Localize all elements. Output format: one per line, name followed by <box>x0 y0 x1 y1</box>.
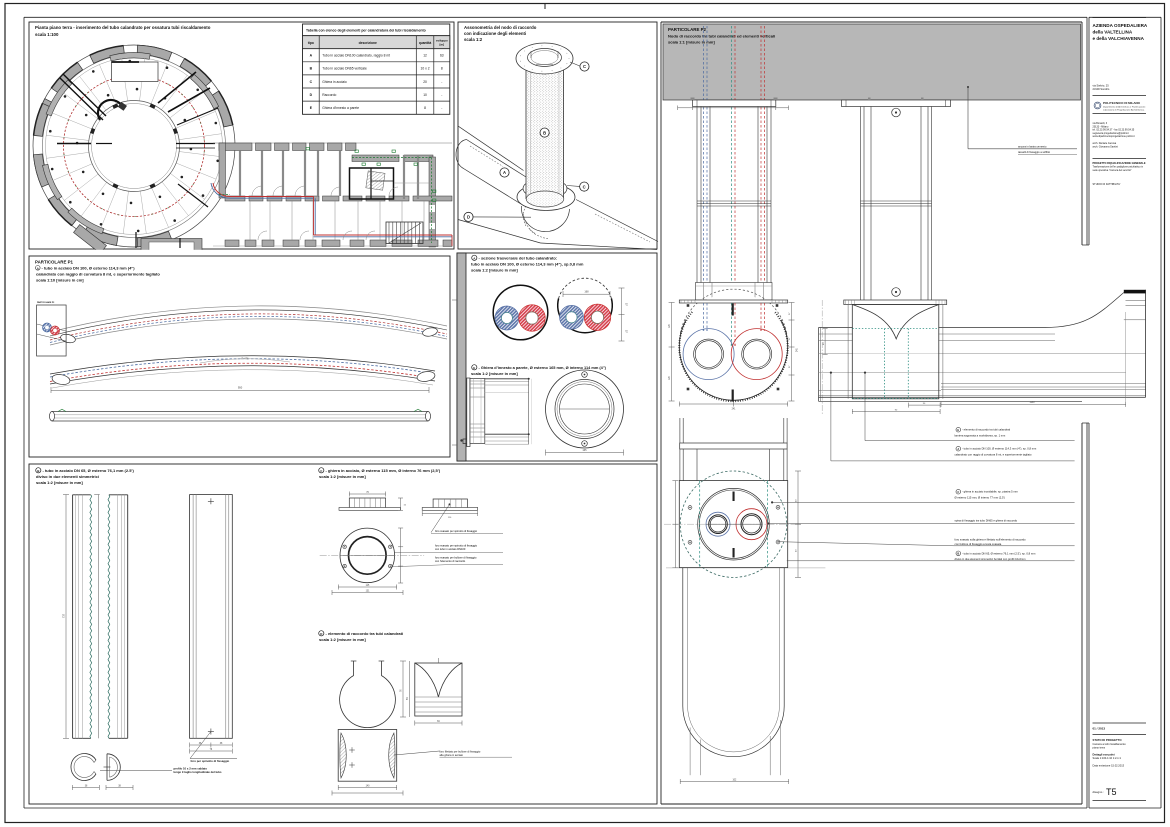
svg-text:scala 1:2 [misure in mm]: scala 1:2 [misure in mm] <box>471 268 518 273</box>
svg-text:alla ghiera in acciaio: alla ghiera in acciaio <box>440 753 464 757</box>
svg-text:Ghiera in acciaio: Ghiera in acciaio <box>322 80 347 84</box>
svg-text:foro svasato per bullone di fi: foro svasato per bullone di fissaggio <box>435 556 477 560</box>
svg-text:-: - <box>441 106 442 110</box>
svg-text:8: 8 <box>424 106 426 110</box>
svg-text:23100 Sondrio: 23100 Sondrio <box>1093 87 1110 91</box>
svg-text:Dettagli esecutivi: Dettagli esecutivi <box>1093 753 1115 757</box>
svg-text:A: A <box>310 54 313 58</box>
svg-text:40: 40 <box>796 499 798 502</box>
svg-text:con bullone di fissaggio a tes: con bullone di fissaggio a testa svasata <box>955 542 1002 546</box>
svg-text:scala 1:2 [misure in mm]: scala 1:2 [misure in mm] <box>36 480 83 485</box>
svg-text:- elemento di raccordo tra tub: - elemento di raccordo tra tubi calandra… <box>326 631 404 636</box>
svg-text:e della VALCHIAVENNA: e della VALCHIAVENNA <box>1093 36 1145 41</box>
svg-text:30: 30 <box>923 403 926 405</box>
svg-text:Pianta piano terra - inserimen: Pianta piano terra - inserimento del tub… <box>35 25 211 30</box>
svg-text:PARTICOLARE P3: PARTICOLARE P3 <box>37 301 55 304</box>
svg-text:C: C <box>583 64 586 69</box>
svg-text:tipo: tipo <box>308 41 314 45</box>
svg-text:Tubo in acciaio DN100 calandra: Tubo in acciaio DN100 calandrato, raggio… <box>322 54 390 58</box>
svg-text:diviso in due elementi simmetr: diviso in due elementi simmetrici <box>36 474 99 479</box>
svg-text:84: 84 <box>407 697 409 700</box>
svg-text:140: 140 <box>366 785 371 787</box>
svg-text:8: 8 <box>441 67 443 71</box>
svg-text:E: E <box>473 366 475 370</box>
svg-text:40: 40 <box>823 342 825 345</box>
svg-text:Data emissione 15.02.2013: Data emissione 15.02.2013 <box>1093 764 1125 768</box>
svg-text:Dipartimento di Architettura e: Dipartimento di Architettura e Pianifica… <box>1103 106 1146 109</box>
svg-text:con tubo in acciaio DN100: con tubo in acciaio DN100 <box>435 547 466 551</box>
svg-text:- Ghiera d’innesto a parete, Ø: - Ghiera d’innesto a parete, Ø esterno 1… <box>479 365 607 370</box>
svg-text:C: C <box>310 80 313 84</box>
svg-text:Ghiera d'innesto a parete: Ghiera d'innesto a parete <box>322 106 359 110</box>
svg-text:168: 168 <box>584 291 589 294</box>
svg-text:calandrato con raggio di curva: calandrato con raggio di curvatura 8 mt,… <box>955 453 1032 457</box>
svg-text:scala 1:2: scala 1:2 <box>464 37 483 42</box>
svg-text:76: 76 <box>401 689 403 692</box>
svg-text:10 x 2: 10 x 2 <box>421 67 430 71</box>
svg-text:- ghiera in acciaio inoxidabil: - ghiera in acciaio inoxidabile, sp. pia… <box>962 490 1019 494</box>
svg-text:15: 15 <box>404 505 407 507</box>
svg-text:scala 1:100: scala 1:100 <box>35 32 59 37</box>
svg-text:57: 57 <box>789 312 791 315</box>
svg-text:D: D <box>467 215 470 220</box>
svg-text:disegno :: disegno : <box>1093 790 1105 794</box>
svg-text:B: B <box>543 130 546 135</box>
svg-text:38: 38 <box>85 785 88 787</box>
svg-text:E: E <box>957 428 959 432</box>
svg-text:Ø esterno 115 mm, Ø interno 77: Ø esterno 115 mm, Ø interno 77 mm (2,5’) <box>955 496 1006 500</box>
svg-text:arch. Giovanna Santini: arch. Giovanna Santini <box>1093 146 1119 149</box>
svg-text:T5: T5 <box>1106 787 1117 797</box>
svg-text:57: 57 <box>789 365 791 368</box>
svg-text:PARTICOLARE P2: PARTICOLARE P2 <box>668 27 707 32</box>
svg-text:scala 1:2 [misure in mm]: scala 1:2 [misure in mm] <box>319 637 366 642</box>
svg-text:A: A <box>957 447 959 451</box>
svg-text:241: 241 <box>732 409 737 411</box>
svg-text:STUDIO DI FATTIBILITA': STUDIO DI FATTIBILITA' <box>1093 183 1121 186</box>
svg-text:1240: 1240 <box>1029 402 1035 404</box>
svg-text:B: B <box>310 67 313 71</box>
svg-text:scala 1:1 [misure in mm]: scala 1:1 [misure in mm] <box>668 40 715 45</box>
svg-text:diviso in due elementi simmetr: diviso in due elementi simmetrici bordat… <box>955 557 1027 561</box>
svg-text:C: C <box>957 490 959 494</box>
svg-text:57: 57 <box>625 330 628 333</box>
svg-text:102: 102 <box>732 779 737 781</box>
svg-text:76: 76 <box>210 749 213 751</box>
svg-text:57: 57 <box>789 337 791 340</box>
svg-text:- tubo in acciaio DN 100, Ø es: - tubo in acciaio DN 100, Ø esterno 114,… <box>42 266 136 271</box>
svg-text:PARTICOLARE P1: PARTICOLARE P1 <box>35 260 74 265</box>
svg-text:38: 38 <box>220 743 223 745</box>
svg-text:950: 950 <box>238 386 243 390</box>
svg-text:Trasformazione dell'ex padigli: Trasformazione dell'ex padiglione psichi… <box>1093 166 1144 169</box>
svg-text:Tubo in acciaio DN65 verticale: Tubo in acciaio DN65 verticale <box>322 67 367 71</box>
svg-text:20: 20 <box>423 80 427 84</box>
svg-text:calandrato con raggio di curva: calandrato con raggio di curvatura 8 mt,… <box>36 272 160 277</box>
svg-text:- elemento di raccordo tra tub: - elemento di raccordo tra tubi calandra… <box>962 428 1011 432</box>
svg-text:110: 110 <box>448 517 452 519</box>
svg-text:con indicazione degli elementi: con indicazione degli elementi <box>464 31 526 36</box>
svg-text:www.dipartimentoprogettazione.: www.dipartimentoprogettazione.polimi.it <box>1093 135 1135 138</box>
svg-text:165: 165 <box>582 449 587 452</box>
svg-text:ancora in lastra cemento: ancora in lastra cemento <box>1018 144 1047 148</box>
svg-text:- tubo in acciaio DN 65, Ø est: - tubo in acciaio DN 65, Ø esterno 76,1 … <box>43 468 135 473</box>
svg-text:- ghiera in acciaio, Ø esterno: - ghiera in acciaio, Ø esterno 115 mm, Ø… <box>326 468 441 473</box>
svg-text:Tabella con elenco degli eleme: Tabella con elenco degli elementi per ca… <box>306 29 426 33</box>
svg-text:D: D <box>310 93 313 97</box>
svg-text:84: 84 <box>437 721 440 723</box>
svg-text:- tubo in acciaio DN 100, Ø es: - tubo in acciaio DN 100, Ø esterno 114,… <box>962 447 1037 451</box>
svg-text:descrizione: descrizione <box>359 41 377 45</box>
svg-text:foro svasato per spinotto di f: foro svasato per spinotto di fissaggio <box>435 543 478 547</box>
svg-text:A: A <box>503 170 506 175</box>
svg-text:57: 57 <box>625 303 628 306</box>
svg-text:della VALTELLINA: della VALTELLINA <box>1093 30 1133 35</box>
svg-text:foro per spinotto di fissaggio: foro per spinotto di fissaggio <box>191 759 230 763</box>
svg-text:E: E <box>310 106 313 110</box>
svg-text:scala 1:2 [misure in mm]: scala 1:2 [misure in mm] <box>471 371 518 376</box>
svg-text:115: 115 <box>366 585 370 587</box>
svg-text:lungo il taglio longitudinale: lungo il taglio longitudinale del tubo <box>174 770 222 774</box>
svg-text:AZIENDA OSPEDALIERA: AZIENDA OSPEDALIERA <box>1093 23 1148 28</box>
svg-text:131: 131 <box>366 590 371 592</box>
svg-text:sede operativa “Camera del ser: sede operativa “Camera del servizio” <box>1093 169 1132 172</box>
svg-text:tubo in acciaio DN 100, Ø este: tubo in acciaio DN 100, Ø esterno 114,3 … <box>471 262 584 267</box>
svg-text:12: 12 <box>423 54 427 58</box>
svg-text:[m]: [m] <box>440 43 445 47</box>
svg-text:40: 40 <box>796 549 798 552</box>
svg-text:90: 90 <box>895 409 898 411</box>
svg-text:A: A <box>37 266 39 270</box>
svg-text:PROGETTO RIQUALIFICAZIONE GENE: PROGETTO RIQUALIFICAZIONE GENERALE <box>1093 162 1146 165</box>
svg-text:quantità: quantità <box>419 41 432 45</box>
svg-text:63: 63 <box>440 54 444 58</box>
svg-text:120: 120 <box>669 375 671 380</box>
svg-text:B: B <box>957 552 959 556</box>
svg-text:lamiera sagomata a morbidezza,: lamiera sagomata a morbidezza, sp. 1 mm <box>955 434 1007 438</box>
svg-text:scala 1:10 [misure in cm]: scala 1:10 [misure in cm] <box>36 278 84 283</box>
svg-text:piano terra: piano terra <box>1093 745 1106 749</box>
svg-text:Nodo di raccordo tra tubi cala: Nodo di raccordo tra tubi calandrati ed … <box>668 34 775 39</box>
svg-text:arch. Daniele Gerosa: arch. Daniele Gerosa <box>1093 142 1117 145</box>
svg-text:-: - <box>441 80 442 84</box>
svg-text:con l'elemento di raccordo: con l'elemento di raccordo <box>435 559 466 563</box>
svg-text:STATO DI PROGETTO: STATO DI PROGETTO <box>1093 738 1123 742</box>
svg-text:38: 38 <box>118 785 121 787</box>
svg-text:Raccordo: Raccordo <box>322 93 336 97</box>
svg-text:Assonometria del nodo di racco: Assonometria del nodo di raccordo <box>464 25 537 30</box>
svg-text:120: 120 <box>669 323 671 328</box>
svg-text:Scala 1:100-1:10 1:2-1:1: Scala 1:100-1:10 1:2-1:1 <box>1093 756 1122 760</box>
svg-text:tasselli di fissaggio a soffit: tasselli di fissaggio a soffitto <box>1018 150 1051 154</box>
svg-text:01 / 2013: 01 / 2013 <box>1093 727 1106 731</box>
svg-text:foro svasato per spinotto di f: foro svasato per spinotto di fissaggio <box>435 529 478 533</box>
svg-text:POLITECNICO DI MILANO: POLITECNICO DI MILANO <box>1103 101 1141 105</box>
svg-text:-: - <box>441 93 442 97</box>
svg-text:- sezione trasversale del tubo: - sezione trasversale del tubo calandrat… <box>479 256 558 261</box>
svg-text:10: 10 <box>423 93 427 97</box>
svg-text:C: C <box>583 184 586 189</box>
svg-text:- tubo in acciaio DN 65, Ø est: - tubo in acciaio DN 65, Ø esterno 76,1 … <box>962 551 1036 555</box>
svg-text:76: 76 <box>366 492 369 494</box>
svg-text:737: 737 <box>63 613 66 618</box>
svg-text:foro svasato sulla ghiera e fi: foro svasato sulla ghiera e filettato su… <box>955 537 1027 541</box>
svg-text:241: 241 <box>797 347 799 352</box>
svg-text:Laboratorio di Progettazione A: Laboratorio di Progettazione Architetton… <box>1103 108 1145 111</box>
svg-text:spina di fissaggio tra tubo DN: spina di fissaggio tra tubo DN65 e ghier… <box>955 519 1018 523</box>
svg-text:Camera a tubi riscaldamento: Camera a tubi riscaldamento <box>1093 742 1127 746</box>
svg-text:scala 1:2 [misure in mm]: scala 1:2 [misure in mm] <box>319 474 366 479</box>
